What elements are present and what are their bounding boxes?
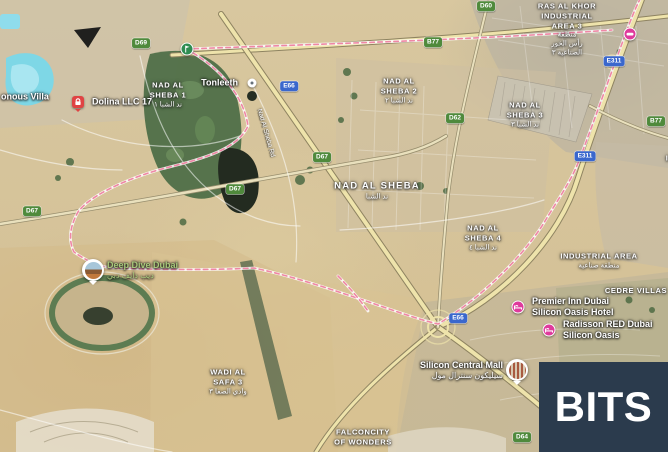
district-label-cedre-villas: CEDRE VILLAS <box>605 286 667 296</box>
silicon-central-mall-label[interactable]: Silicon Central Mallسيليكون سنترال مول <box>420 360 503 380</box>
deep-dive-dubai-marker[interactable] <box>82 259 104 281</box>
mall-photo-icon <box>506 359 528 381</box>
road-shield-d64-12: D64 <box>513 432 531 442</box>
radisson-red-dubai-silicon-oasis-marker[interactable] <box>543 324 556 337</box>
district-label-nad-al-sheba-1: NAD ALSHEBA 1ند الشبا ١ <box>150 81 186 110</box>
road-shield-d67-9: D67 <box>226 184 244 194</box>
deep-dive-photo-icon <box>82 259 104 281</box>
hotel-bed-icon <box>512 301 525 314</box>
dolina-llc-label[interactable]: Dolina LLC 17 <box>92 97 152 108</box>
radisson-red-dubai-silicon-oasis-label[interactable]: Radisson RED DubaiSilicon Oasis <box>563 319 653 341</box>
district-label-wadi-al-safa-3: WADI ALSAFA 3وادي الصفا ٣ <box>209 368 246 397</box>
metro-icon <box>624 28 637 41</box>
road-label-nad-al-sheba-rd: Nad Al Sheba Rd <box>256 108 276 158</box>
road-shield-e66-3: E66 <box>280 81 298 91</box>
road-shield-e311-4: E311 <box>604 56 625 66</box>
bits-watermark: BITS <box>539 362 668 452</box>
dolina-llc-marker[interactable] <box>72 96 84 108</box>
partial-label-villa: onous Villa <box>1 92 49 103</box>
hotel-bed-icon <box>543 324 556 337</box>
road-shield-d62-6: D62 <box>446 113 464 123</box>
road-shield-b77-1: B77 <box>424 37 442 47</box>
bits-logo-text: BITS <box>555 383 653 431</box>
premier-inn-dubai-silicon-oasis-hotel-label[interactable]: Premier Inn DubaiSilicon Oasis Hotel <box>532 296 614 318</box>
lock-icon <box>72 96 84 108</box>
golf-flag-icon <box>181 43 194 56</box>
map-viewport[interactable]: NAD ALSHEBA 1ند الشبا ١NAD ALSHEBA 2ند ا… <box>0 0 668 452</box>
deep-dive-dubai-label[interactable]: Deep Dive Dubaiديب دايف دبي <box>107 260 178 280</box>
district-label-industrial-area: INDUSTRIAL AREAمنطقة صناعية <box>560 252 637 271</box>
road-shield-d69-0: D69 <box>132 38 150 48</box>
district-label-nad-al-sheba-3: NAD ALSHEBA 3ند الشبا ٣ <box>507 101 543 130</box>
district-label-nad-al-sheba-2: NAD ALSHEBA 2ند الشبا ٢ <box>381 77 417 106</box>
district-label-nad-al-sheba: NAD AL SHEBAند الشبا <box>334 180 420 201</box>
tonleeth-label[interactable]: Tonleeth <box>201 78 238 89</box>
district-label-falconcity-of-wonders: FALCONCITYOF WONDERS <box>334 427 392 447</box>
road-shield-e66-11: E66 <box>449 313 467 323</box>
district-label-ras-al-khor-industrial-area-3: RAS AL KHORINDUSTRIALAREA 3منطقةرأس الخو… <box>538 2 596 59</box>
district-label-nad-al-sheba-4: NAD ALSHEBA 4ند الشبا ٤ <box>465 224 501 253</box>
poi-dot-icon <box>248 79 257 88</box>
road-shield-d67-8: D67 <box>313 152 331 162</box>
road-shield-e311-7: E311 <box>575 151 596 161</box>
golf-course-marker[interactable] <box>181 43 194 56</box>
tonleeth-marker[interactable] <box>248 79 257 88</box>
silicon-central-mall-marker[interactable] <box>506 359 528 381</box>
road-shield-d67-10: D67 <box>23 206 41 216</box>
metro-station-marker[interactable] <box>624 28 637 41</box>
premier-inn-dubai-silicon-oasis-hotel-marker[interactable] <box>512 301 525 314</box>
road-shield-b77-5: B77 <box>647 116 665 126</box>
road-shield-d60-2: D60 <box>477 1 495 11</box>
